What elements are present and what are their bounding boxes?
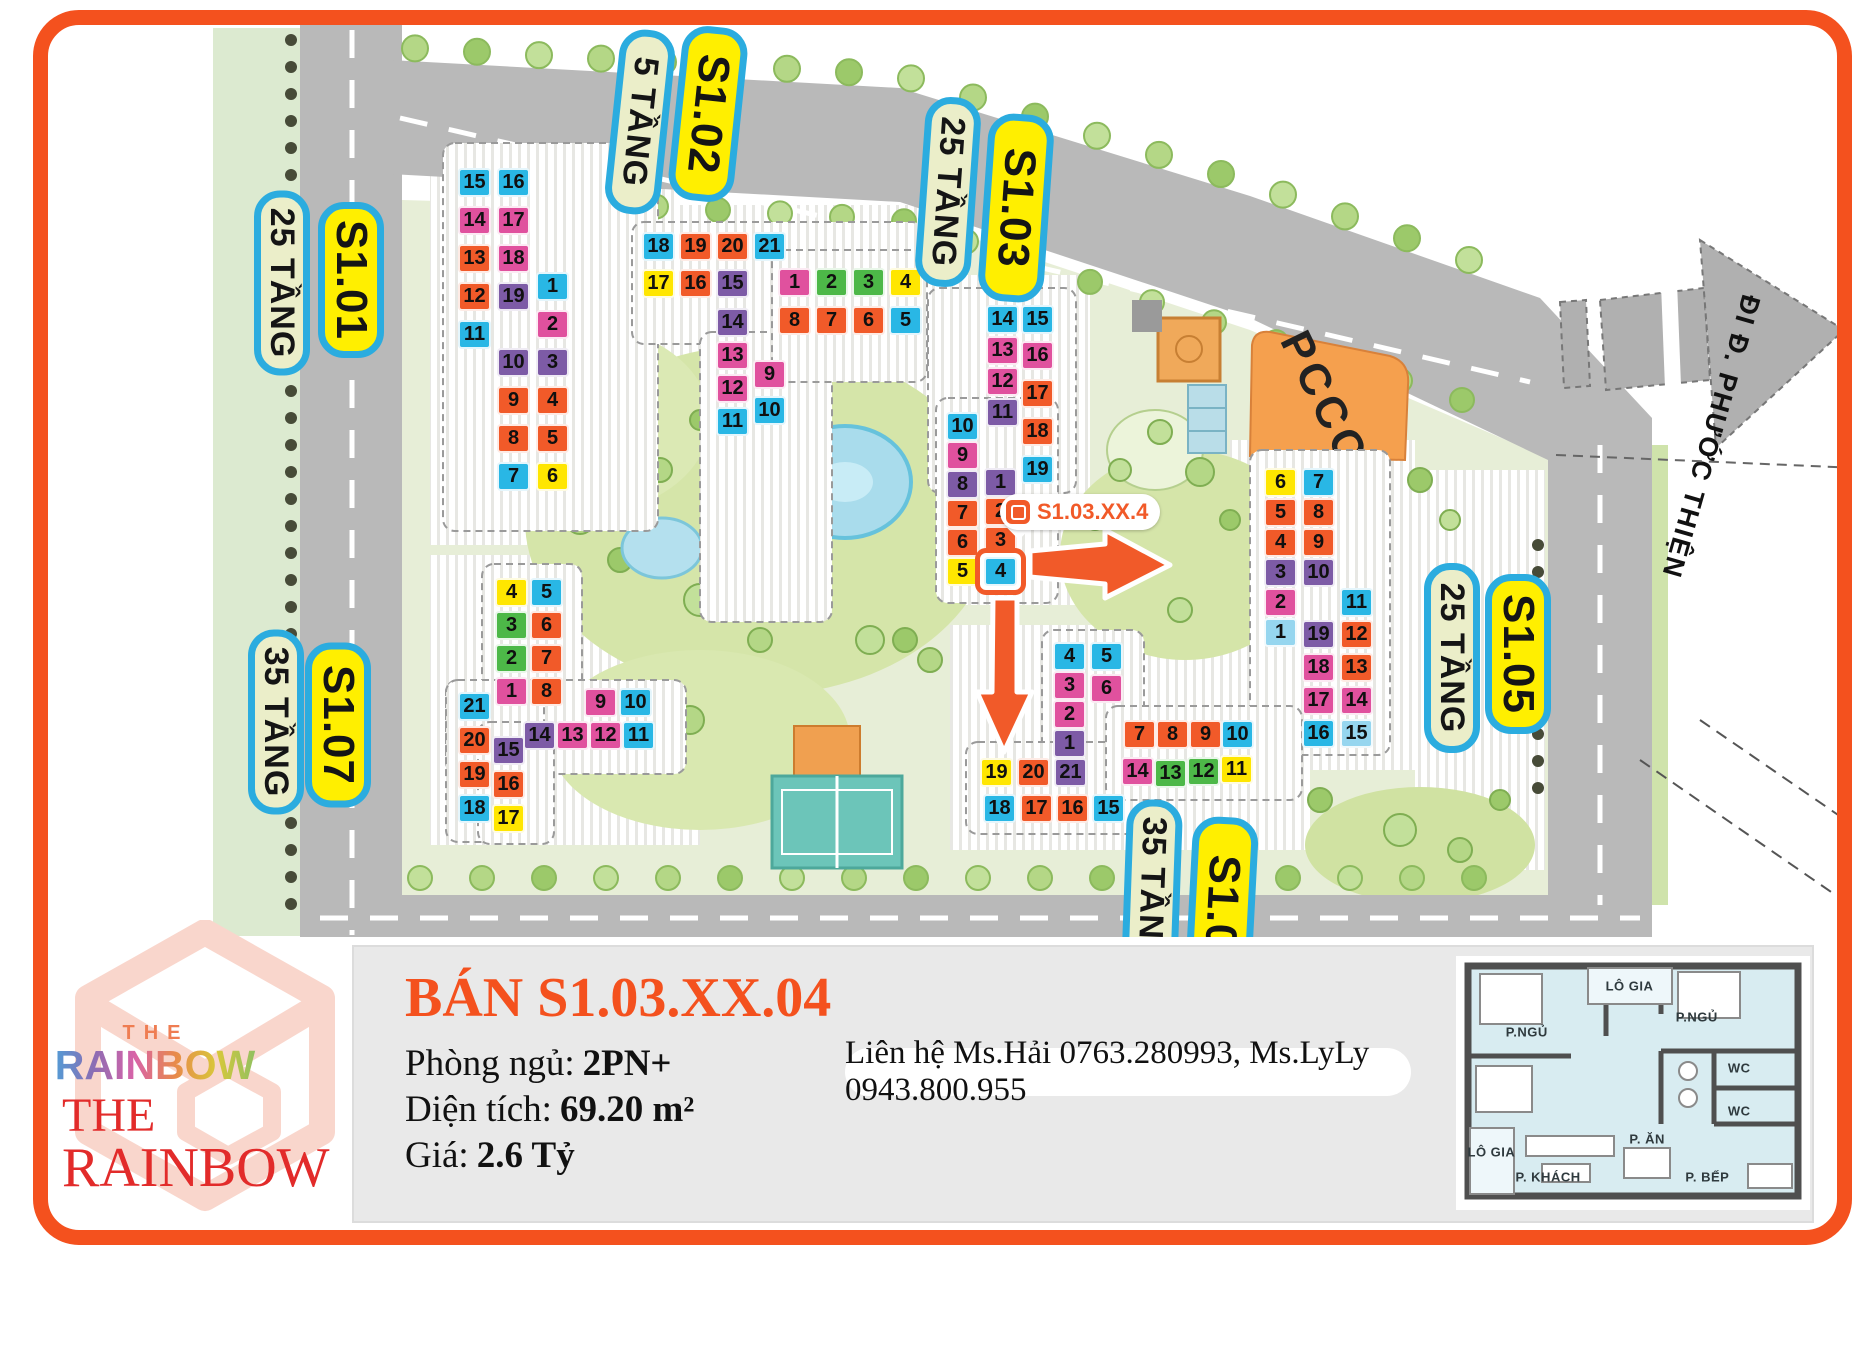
page: PCCC (0, 0, 1864, 1366)
unit-tile[interactable]: 10 (753, 396, 786, 425)
unit-tile[interactable]: 15 (1340, 719, 1373, 748)
unit-tile[interactable]: 7 (1302, 468, 1335, 497)
unit-tile[interactable]: 10 (1302, 558, 1335, 587)
unit-tile[interactable]: 1 (1264, 618, 1297, 647)
unit-tile[interactable]: 17 (1021, 379, 1054, 408)
unit-tile[interactable]: 15 (1092, 794, 1125, 823)
unit-tile[interactable]: 3 (1264, 558, 1297, 587)
logo-the-red-text: THE (62, 1088, 155, 1143)
unit-tile[interactable]: 10 (619, 688, 652, 717)
logo-rainbow-gradient-text: RAINBOW (52, 1042, 258, 1089)
unit-tile[interactable]: 14 (523, 721, 556, 750)
unit-tile[interactable]: 21 (753, 232, 786, 261)
unit-tile[interactable]: 2 (1264, 588, 1297, 617)
unit-tile[interactable]: 7 (1123, 720, 1156, 749)
unit-tile[interactable]: 14 (458, 206, 491, 235)
floors-label: 25 TẦNG (254, 191, 310, 376)
room-label: P. ĂN (1629, 1131, 1665, 1146)
block-label: S1.03 (977, 112, 1056, 304)
unit-tile[interactable]: 15 (1021, 305, 1054, 334)
unit-tile[interactable]: 16 (1302, 719, 1335, 748)
unit-tile[interactable]: 4 (984, 557, 1017, 586)
site-plan-map[interactable]: PCCC (48, 25, 1837, 937)
unit-tile[interactable]: 21 (458, 692, 491, 721)
unit-marker[interactable]: S1.03.XX.4 (1000, 494, 1160, 530)
unit-tile[interactable]: 7 (815, 306, 848, 335)
unit-tile[interactable]: 14 (986, 305, 1019, 334)
unit-tile[interactable]: 5 (1264, 498, 1297, 527)
unit-tile[interactable]: 2 (495, 644, 528, 673)
unit-tile[interactable]: 19 (1302, 620, 1335, 649)
floorplan-drawing (1456, 956, 1810, 1210)
marker-label: S1.03.XX.4 (1037, 499, 1148, 525)
block-label: S1.01 (318, 202, 384, 358)
unit-tile[interactable]: 11 (1340, 588, 1373, 617)
unit-tile[interactable]: 11 (458, 320, 491, 349)
room-label: WC (1728, 1060, 1751, 1075)
unit-tile[interactable]: 8 (946, 470, 979, 499)
unit-tile[interactable]: 12 (1340, 620, 1373, 649)
unit-tile[interactable]: 12 (986, 367, 1019, 396)
unit-tile[interactable]: 9 (497, 386, 530, 415)
unit-tile[interactable]: 4 (536, 386, 569, 415)
unit-tile[interactable]: 20 (458, 726, 491, 755)
unit-tile[interactable]: 16 (1056, 794, 1089, 823)
unit-tile[interactable]: 9 (753, 360, 786, 389)
unit-tile[interactable]: 10 (1221, 720, 1254, 749)
unit-tile[interactable]: 6 (852, 306, 885, 335)
room-label: WC (1728, 1103, 1751, 1118)
detail-area-label: Diện tích: (405, 1089, 552, 1130)
unit-tile[interactable]: 21 (1054, 758, 1087, 787)
unit-tile[interactable]: 18 (642, 232, 675, 261)
unit-tile[interactable]: 20 (1017, 758, 1050, 787)
unit-tile[interactable]: 9 (1302, 528, 1335, 557)
unit-tile[interactable]: 8 (1302, 498, 1335, 527)
unit-tile[interactable]: 1 (984, 468, 1017, 497)
unit-tile[interactable]: 14 (1121, 757, 1154, 786)
unit-tile[interactable]: 12 (589, 721, 622, 750)
room-label: P.NGỦ (1676, 1009, 1718, 1024)
detail-bedrooms: Phòng ngủ:2PN+ (405, 1042, 672, 1085)
unit-tile[interactable]: 13 (1154, 759, 1187, 788)
unit-tile[interactable]: 5 (536, 424, 569, 453)
unit-tile[interactable]: 18 (497, 244, 530, 273)
unit-tile[interactable]: 16 (679, 269, 712, 298)
unit-tile[interactable]: 4 (1053, 642, 1086, 671)
site-plan-inner: PCCC (48, 25, 1837, 937)
detail-area-value: 69.20 m² (560, 1089, 694, 1130)
unit-tile[interactable]: 1 (536, 272, 569, 301)
unit-tile[interactable]: 9 (584, 688, 617, 717)
unit-tile[interactable]: 1 (495, 677, 528, 706)
unit-tile[interactable]: 7 (530, 644, 563, 673)
unit-tile[interactable]: 6 (1090, 674, 1123, 703)
unit-tile[interactable]: 13 (556, 721, 589, 750)
block-label: S1.07 (305, 643, 371, 808)
unit-tile[interactable]: 11 (1220, 755, 1253, 784)
unit-tile[interactable]: 10 (946, 412, 979, 441)
unit-tile[interactable]: 17 (497, 206, 530, 235)
unit-tile[interactable]: 15 (492, 736, 525, 765)
unit-tile[interactable]: 8 (530, 677, 563, 706)
floors-label: 25 TẦNG (1424, 563, 1480, 753)
unit-tile[interactable]: 12 (1187, 757, 1220, 786)
unit-tile[interactable]: 1 (778, 268, 811, 297)
unit-tile[interactable]: 14 (716, 308, 749, 337)
unit-tile[interactable]: 9 (946, 441, 979, 470)
floorplan-thumbnail[interactable]: LÔ GIAP.NGỦP.NGỦWCWCP. ĂNLÔ GIAP. KHÁCHP… (1456, 956, 1810, 1210)
unit-tile[interactable]: 19 (1021, 455, 1054, 484)
unit-tile[interactable]: 6 (1264, 468, 1297, 497)
unit-tile[interactable]: 13 (716, 341, 749, 370)
unit-tile[interactable]: 7 (946, 499, 979, 528)
unit-tile[interactable]: 7 (497, 462, 530, 491)
unit-tile[interactable]: 5 (530, 578, 563, 607)
unit-tile[interactable]: 8 (778, 306, 811, 335)
unit-tile[interactable]: 11 (986, 398, 1019, 427)
detail-bedrooms-label: Phòng ngủ: (405, 1043, 575, 1084)
room-label: P. BẾP (1685, 1169, 1729, 1184)
unit-tile[interactable]: 3 (852, 268, 885, 297)
unit-tile[interactable]: 1 (1053, 729, 1086, 758)
unit-tile[interactable]: 16 (497, 168, 530, 197)
unit-tile[interactable]: 18 (983, 794, 1016, 823)
unit-tile[interactable]: 19 (458, 760, 491, 789)
detail-price-label: Giá: (405, 1135, 469, 1176)
unit-tile[interactable]: 3 (1053, 671, 1086, 700)
detail-price: Giá:2.6 Tỷ (405, 1134, 575, 1177)
unit-tile[interactable]: 5 (1090, 642, 1123, 671)
floors-label: 35 TẦNG (248, 630, 304, 815)
unit-tile[interactable]: 19 (679, 232, 712, 261)
detail-bedrooms-value: 2PN+ (583, 1043, 672, 1084)
unit-tile[interactable]: 18 (1302, 653, 1335, 682)
unit-tile[interactable]: 6 (530, 611, 563, 640)
unit-tile[interactable]: 17 (492, 804, 525, 833)
unit-tile[interactable]: 12 (716, 374, 749, 403)
detail-price-value: 2.6 Tỷ (477, 1135, 575, 1176)
floors-label: 35 TẦNG (1121, 799, 1183, 937)
block-label: S1.0 (1185, 815, 1260, 937)
unit-tile[interactable]: 3 (536, 348, 569, 377)
unit-tile[interactable]: 11 (716, 407, 749, 436)
unit-tile[interactable]: 16 (492, 770, 525, 799)
listing-title: BÁN S1.03.XX.04 (405, 966, 831, 1030)
unit-tile[interactable]: 9 (1189, 720, 1222, 749)
unit-tile[interactable]: 3 (495, 611, 528, 640)
unit-tile[interactable]: 13 (1340, 653, 1373, 682)
unit-tile[interactable]: 17 (642, 269, 675, 298)
unit-tile[interactable]: 16 (1021, 341, 1054, 370)
unit-tile[interactable]: 6 (946, 528, 979, 557)
unit-tile[interactable]: 10 (497, 348, 530, 377)
unit-tile[interactable]: 8 (497, 424, 530, 453)
unit-tile[interactable]: 17 (1020, 794, 1053, 823)
unit-tile[interactable]: 20 (716, 232, 749, 261)
room-label: P. KHÁCH (1515, 1169, 1580, 1184)
room-label: P.NGỦ (1506, 1025, 1548, 1040)
unit-tile[interactable]: 14 (1340, 686, 1373, 715)
unit-tile[interactable]: 8 (1156, 720, 1189, 749)
unit-tile[interactable]: 2 (815, 268, 848, 297)
unit-tile[interactable]: 4 (1264, 528, 1297, 557)
room-label: LÔ GIA (1468, 1144, 1516, 1159)
unit-tile[interactable]: 11 (622, 721, 655, 750)
unit-tile[interactable]: 12 (458, 282, 491, 311)
detail-area: Diện tích:69.20 m² (405, 1088, 694, 1131)
unit-tile[interactable]: 15 (458, 168, 491, 197)
marker-logo-icon (1006, 500, 1030, 524)
unit-tile[interactable]: 17 (1302, 686, 1335, 715)
unit-tile[interactable]: 6 (536, 462, 569, 491)
unit-tile[interactable]: 18 (458, 794, 491, 823)
unit-tile[interactable]: 13 (986, 336, 1019, 365)
logo-rainbow-red-text: RAINBOW (62, 1136, 330, 1200)
unit-tile[interactable]: 18 (1021, 417, 1054, 446)
unit-tile[interactable]: 19 (980, 758, 1013, 787)
room-label: LÔ GIA (1606, 979, 1654, 994)
unit-tile[interactable]: 2 (536, 310, 569, 339)
unit-tile[interactable]: 19 (497, 282, 530, 311)
unit-tile[interactable]: 13 (458, 244, 491, 273)
unit-tile[interactable]: 4 (495, 578, 528, 607)
block-label: S1.05 (1485, 574, 1551, 734)
unit-tile[interactable]: 2 (1053, 700, 1086, 729)
contact-info: Liên hệ Ms.Hải 0763.280993, Ms.LyLy 0943… (845, 1048, 1411, 1096)
unit-tile[interactable]: 15 (716, 269, 749, 298)
unit-tile[interactable]: 5 (889, 306, 922, 335)
